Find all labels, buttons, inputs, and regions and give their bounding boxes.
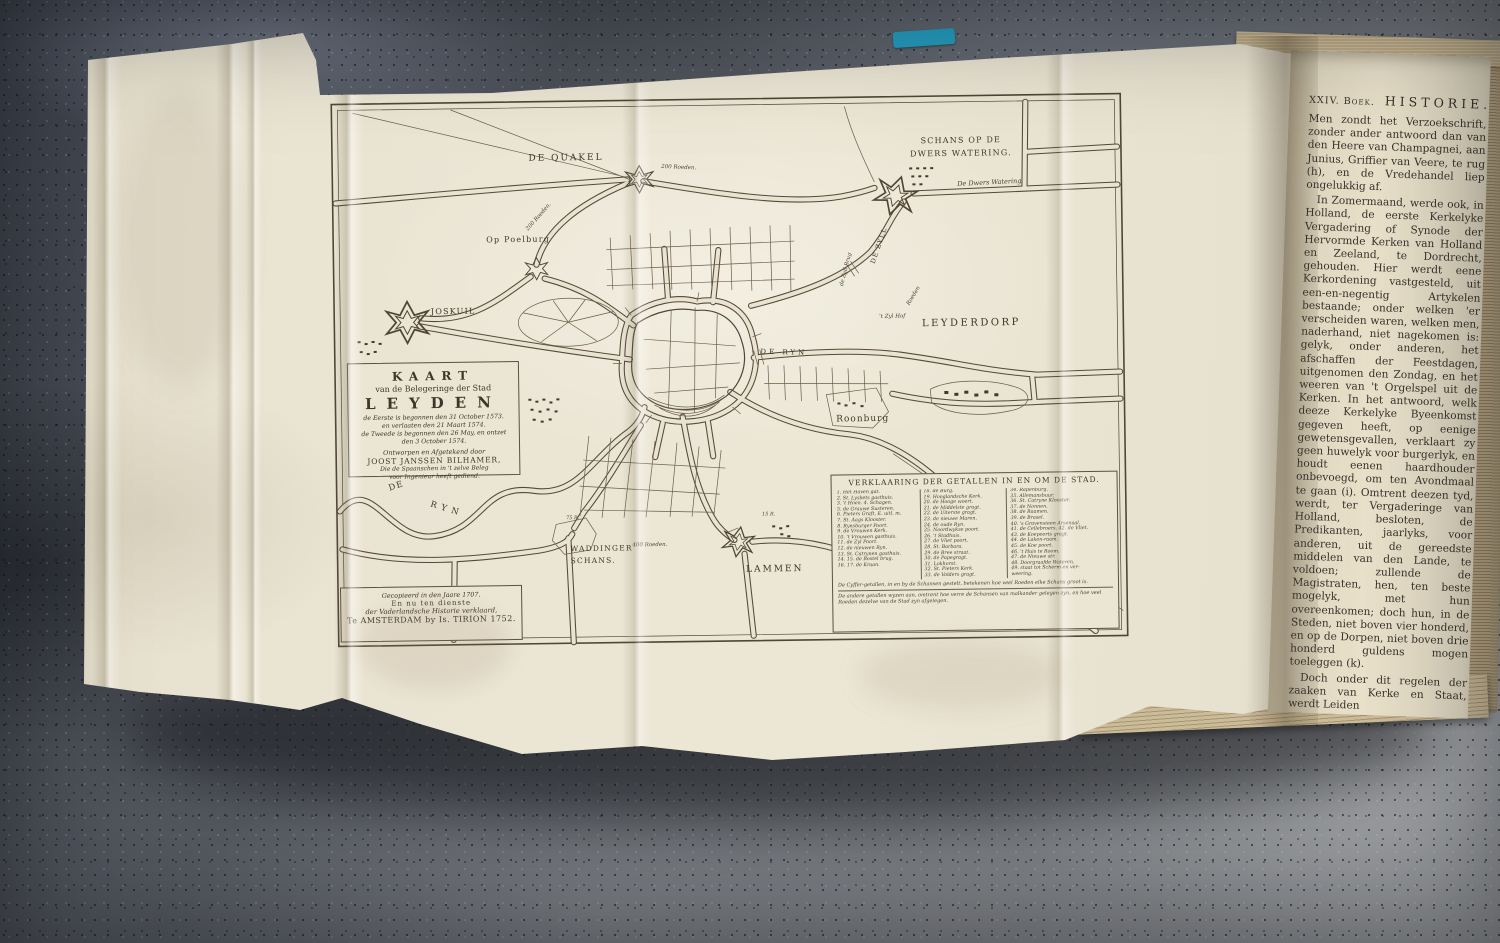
book-right-page: XXIV. Boek. HISTORIE. 4 Men zondt het Ve… — [1268, 50, 1491, 719]
label-200-roeden-b: 200 Roeden. — [524, 202, 552, 233]
legend-entry: 33. de Volders gragt. — [925, 572, 1008, 579]
label-schans-line2: DWERS WATERING. — [910, 148, 1012, 158]
label-15r: 15 R. — [762, 511, 776, 517]
header-book-number: XXIV. Boek. — [1309, 95, 1375, 108]
label-75r: 75 R. — [566, 515, 580, 521]
cartouche-dates: de Eerste is begonnen den 31 October 157… — [349, 413, 519, 447]
paper-stain — [120, 90, 240, 390]
legend-entry: weering. — [1011, 571, 1113, 578]
body-paragraph: Men zondt het Verzoekschrift, zonder and… — [1306, 113, 1487, 198]
paper-stain — [860, 640, 1060, 710]
legend-column-1: 1. Het Haven gat.2. St. Lysbets gasthuis… — [837, 489, 921, 580]
label-rijn-east: DE RYN — [760, 348, 807, 357]
photo-stage: DE QUAKEL SCHANS OP DE DWERS WATERING. D… — [0, 0, 1500, 943]
legend-note-2: De andere getallen wyzen aan, omtrent ho… — [838, 589, 1113, 605]
right-page-text-block: XXIV. Boek. HISTORIE. 4 Men zondt het Ve… — [1268, 50, 1491, 719]
label-rijn-de: DE — [387, 479, 405, 493]
legend-column-3: 34. Rapenburg.35. Allemansbuur.36. St. C… — [1006, 487, 1113, 578]
label-schans-line1: SCHANS OP DE — [920, 135, 1001, 145]
body-paragraph: Doch onder dit regelen der zaaken van Ke… — [1288, 671, 1467, 717]
map-cartouche: KAART van de Belegeringe der Stad LEYDEN… — [347, 361, 521, 477]
legend-title: VERKLAARING DER GETALLEN IN EN OM DE STA… — [837, 475, 1112, 488]
label-joskuil: JOSKUIL — [430, 307, 476, 317]
cartouche-city: LEYDEN — [348, 393, 518, 413]
imprint-publisher: Te AMSTERDAM by Is. TIRION 1752. — [341, 614, 521, 626]
label-waddinger-schans: SCHANS. — [571, 556, 616, 566]
page-header: XXIV. Boek. HISTORIE. 4 — [1309, 91, 1487, 112]
legend-columns: 1. Het Haven gat.2. St. Lysbets gasthuis… — [837, 487, 1113, 580]
header-running-title: HISTORIE. — [1385, 93, 1491, 112]
label-leyderdorp: LEYDERDORP — [922, 317, 1021, 329]
label-roonburg: Roonburg — [836, 414, 889, 425]
map-imprint: Gecopieerd in den Jaare 1707. En nu ten … — [340, 585, 523, 643]
map-plate: DE QUAKEL SCHANS OP DE DWERS WATERING. D… — [328, 90, 1131, 649]
body-paragraph: In Zomermaand, werde ook, in Holland, de… — [1289, 194, 1483, 675]
label-rijn-ryn: RYN — [429, 500, 465, 520]
label-de-quakel: DE QUAKEL — [528, 153, 603, 164]
label-200-roeden-a: 200 Roeden. — [660, 164, 696, 171]
map-legend: VERKLAARING DER GETALLEN IN EN OM DE STA… — [830, 471, 1119, 633]
legend-column-2: 18. de Burg.19. Hooglandsche Kerk.20. de… — [919, 488, 1007, 579]
label-op-poelburg: Op Poelburg — [486, 234, 550, 244]
cartouche-kaart: KAART — [348, 368, 518, 384]
label-lammen: LAMMEN — [746, 564, 803, 575]
legend-entry: 16. 17. de Kraan. — [838, 562, 921, 569]
label-roeden-vertical: Roeden — [905, 285, 922, 307]
label-400-roeden: 400 Roeden. — [631, 542, 667, 549]
label-zyl-hof: 't Zyl Hof — [879, 314, 906, 320]
label-waddinger: WADDINGER — [570, 543, 632, 553]
